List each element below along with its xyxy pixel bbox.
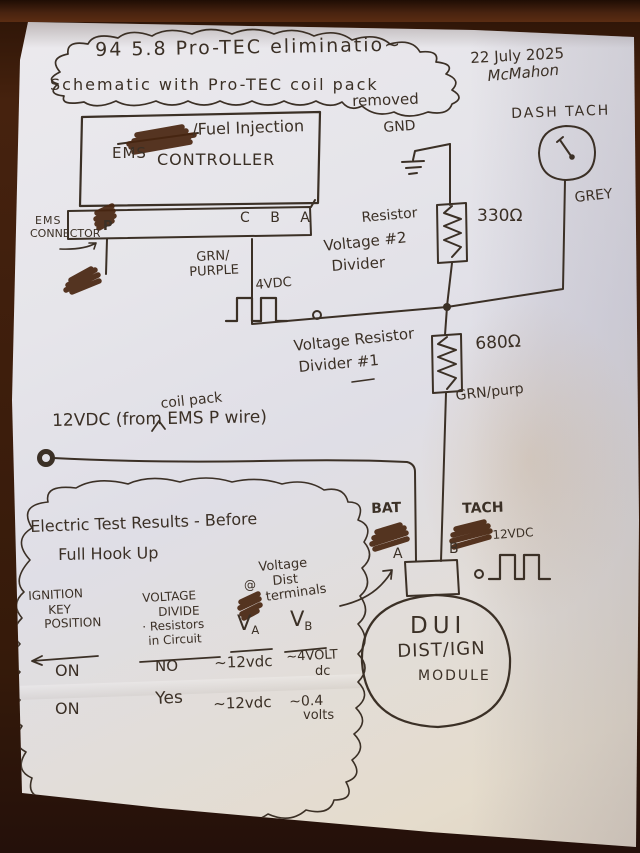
row1-vb-line2: dc: [315, 665, 330, 678]
ems-name-line1: EMS: [112, 146, 147, 161]
pin-b-label: B: [449, 542, 459, 556]
tach-label: TACH: [462, 501, 504, 516]
row2-vb-line2: volts: [303, 709, 334, 722]
divider2-caption2: Divider: [331, 255, 386, 274]
dui-name-line3: MODULE: [418, 669, 491, 683]
row2-key: ON: [55, 701, 80, 717]
row1-key: ON: [55, 663, 80, 679]
vb-letter: V: [290, 607, 304, 631]
pin-p-label: P: [103, 220, 113, 233]
va-subscript: A: [251, 623, 259, 637]
paper-sheet: 94 5.8 Pro-TEC eliminatio~ Schematic wit…: [0, 0, 640, 853]
resistor-680-symbol: [432, 334, 462, 393]
square-wave-12vdc-terminal: [475, 570, 483, 578]
ems-name-line2: CONTROLLER: [157, 152, 275, 168]
resistor-680-value: 680Ω: [475, 334, 521, 353]
dist-note-at: @: [244, 579, 256, 591]
row2-va: ~12vdc: [213, 695, 272, 712]
title-line2: Schematic with Pro-TEC coil pack: [50, 77, 379, 93]
row2-vb-line1: ~0.4: [289, 694, 323, 709]
square-wave-12vdc: [489, 555, 550, 579]
supply-caption: 12VDC (from EMS P wire): [52, 409, 267, 430]
wire-junction-to-resistor680: [445, 307, 447, 335]
underline-divide-column: [140, 657, 220, 662]
ems-connector-caption2: CONNECTOR: [30, 228, 100, 239]
col-vb-header: VB: [290, 609, 312, 633]
signal-12vdc-label: 12VDC: [492, 526, 534, 541]
col-divide-line4: in Circuit: [148, 632, 202, 647]
col-key-line2: KEY: [48, 603, 71, 616]
dui-name-line2: DIST/IGN: [397, 640, 486, 661]
grn-purple-label1: GRN/: [196, 249, 230, 264]
square-wave-4vdc: [226, 298, 287, 321]
dui-name-line1: DUI: [410, 615, 466, 638]
vb-subscript: B: [304, 619, 312, 633]
va-letter: V: [237, 611, 251, 635]
row1-divide: NO: [155, 659, 178, 674]
wire-grey-to-dash-tach: [447, 180, 565, 307]
dash-tach-needle-hub: [569, 154, 575, 160]
col-divide-line2: DIVIDE: [158, 605, 200, 618]
results-title-line2: Full Hook Up: [58, 545, 159, 563]
ems-box-note: /Fuel Injection: [192, 118, 304, 138]
wire-resistor330-to-junction: [447, 263, 452, 306]
row1-vb-line1: ~4VOLT: [286, 648, 338, 664]
dash-tach-label: DASH TACH: [511, 104, 611, 121]
connector-pointer-arrow: [60, 243, 96, 249]
dash-tach-gauge: [539, 126, 595, 180]
pin-a-label: A: [393, 547, 403, 561]
wire-pin-p: [106, 239, 107, 274]
supply-terminal-ring: [40, 452, 53, 465]
grey-wire-label: GREY: [574, 187, 613, 205]
col-key-line1: IGNITION: [28, 587, 83, 602]
dui-connector-box: [405, 560, 459, 596]
gnd-label: GND: [383, 119, 416, 135]
wire-grnpurp-to-dui: [441, 393, 446, 561]
scribble-below-pin-p: [66, 269, 99, 292]
row2-divide: Yes: [155, 690, 183, 708]
dash-tach-needle: [557, 137, 571, 156]
bat-label: BAT: [371, 501, 401, 516]
ground-symbol: [402, 144, 450, 174]
col-va-header: VA: [237, 613, 259, 637]
photo-of-schematic: 94 5.8 Pro-TEC eliminatio~ Schematic wit…: [0, 0, 640, 853]
title-line1: 94 5.8 Pro-TEC eliminatio~: [95, 36, 402, 60]
grn-purple-label2: PURPLE: [189, 263, 239, 279]
signal-4vdc-label: 4VDC: [255, 276, 292, 292]
resistor-330-value: 330Ω: [477, 208, 522, 225]
pins-cba-label: C B A: [240, 211, 318, 225]
col-divide-line1: VOLTAGE: [142, 589, 196, 604]
ems-connector-caption1: EMS: [35, 215, 61, 226]
title-line3: removed: [352, 92, 419, 109]
row1-va: ~12vdc: [214, 654, 273, 671]
col-key-line3: POSITION: [44, 616, 102, 630]
underline-divider-number1: [352, 379, 374, 382]
resistor-330-symbol: [437, 203, 467, 263]
